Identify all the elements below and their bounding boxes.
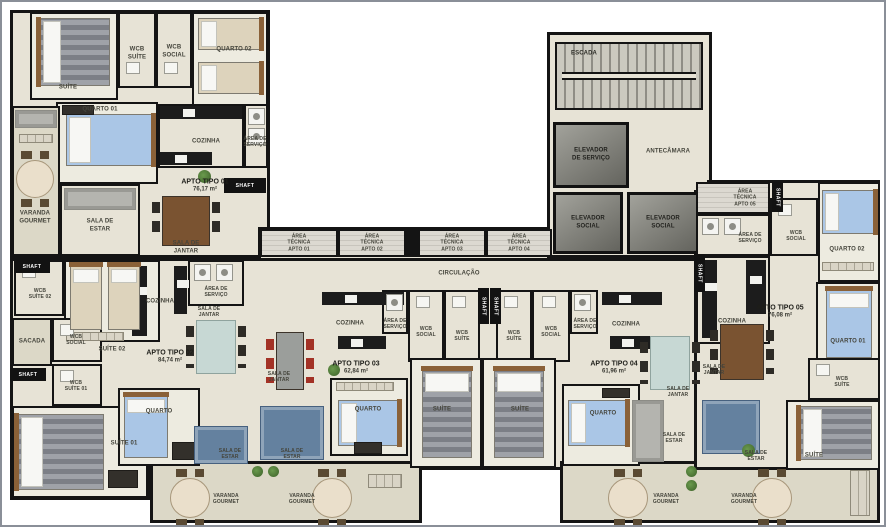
apt04-area: 61,96 m² <box>590 369 637 377</box>
apt02-quarto-label: QUARTO <box>146 408 173 416</box>
tech-area-apto04-label: ÁREA TÉCNICA APTO 04 <box>508 234 531 253</box>
apt05-quarto02-label: QUARTO 02 <box>829 246 864 254</box>
apt05-washer <box>702 218 719 235</box>
apt02-dryer <box>216 264 233 281</box>
apt01-quarto02-bed-1 <box>198 18 260 50</box>
apt02-plant-1 <box>252 466 263 477</box>
apt04-quarto-bed <box>568 400 626 446</box>
apt02-cozinha-label: COZINHA <box>146 298 174 306</box>
apt02-suite02-bed-1 <box>70 266 102 330</box>
apt01-cozinha-label: COZINHA <box>192 138 220 146</box>
apt01-kitchen-counter-2 <box>160 152 212 165</box>
apt04-dining-table <box>650 336 690 390</box>
apt02-shaft-2: SHAFT <box>10 368 46 381</box>
apt02-quarto-bed <box>124 396 168 458</box>
apt03-area: 62,84 m² <box>332 369 379 377</box>
apt04-plant-1 <box>686 466 697 477</box>
apt03-varanda-table <box>312 478 352 518</box>
apt05-quarto01-label: QUARTO 01 <box>830 338 865 346</box>
apt05-area: 76,08 m² <box>756 313 803 321</box>
apt02-varanda-table <box>170 478 210 518</box>
stairs-label: ESCADA <box>571 50 597 58</box>
stairs-landing <box>562 72 696 80</box>
apt02-quarto-desk <box>172 442 196 460</box>
apt03-kitchen-counter-2 <box>338 336 386 349</box>
apt01-sala-sofa <box>64 188 136 210</box>
apt01-sala-jantar-label: SALA DE JANTAR <box>173 241 200 256</box>
apt02-wcb-suite02-label: WCB SUÍTE 02 <box>29 288 51 301</box>
apt02-kitchen-counter-2 <box>174 266 187 314</box>
tech-area-apto01-label: ÁREA TÉCNICA APTO 01 <box>288 234 311 253</box>
apt02-suite02-label: SUÍTE 02 <box>99 346 126 354</box>
apt02-sala-jantar-label: SALA DE JANTAR <box>198 306 220 319</box>
apt04-suite-label: SUÍTE <box>511 406 529 414</box>
apt05-suite-label: SUÍTE <box>805 452 823 460</box>
service-elevator-label: ELEVADOR DE SERVIÇO <box>572 148 610 163</box>
apt02-suite02-bed-2 <box>108 266 140 330</box>
apt04-sala-estar-label: SALA DE ESTAR <box>663 432 685 445</box>
apt01-varanda-label: VARANDA GOURMET <box>19 211 50 226</box>
apt04-cozinha-label: COZINHA <box>612 321 640 329</box>
center-shaft-2: SHAFT <box>490 288 501 324</box>
apt02-sacada-label: SACADA <box>19 338 45 346</box>
tech-area-apto03-label: ÁREA TÉCNICA APTO 03 <box>441 234 464 253</box>
apt05-area-tecnica-label: ÁREA TÉCNICA APTO 05 <box>734 189 757 208</box>
apt04-sala-sofa <box>632 400 664 462</box>
social-elevator-1-label: ELEVADOR SOCIAL <box>571 216 605 231</box>
apt01-suite-label: SUÍTE <box>59 84 77 92</box>
apt02-dining-table <box>196 320 236 374</box>
apt01-wcb-suite-fixture <box>126 62 140 74</box>
apt03-wcb-suite-label: WCB SUÍTE <box>454 330 469 343</box>
apt05-title: APTO TIPO 05 76,08 m² <box>756 294 803 329</box>
apt02-area-servico-label: ÁREA DE SERVIÇO <box>204 286 227 299</box>
apt04-name: APTO TIPO 04 <box>590 361 637 368</box>
apt02-shaft-1: SHAFT <box>14 260 50 273</box>
apt03-varanda-bench <box>368 474 402 488</box>
apt01-shaft: SHAFT <box>224 178 266 193</box>
apt05-shaft-1: SHAFT <box>772 182 783 212</box>
apt04-suite-bed <box>494 370 544 458</box>
apt04-area-servico-label: ÁREA DE SERVIÇO <box>573 318 596 331</box>
apt01-quarto01-label: QUARTO 01 <box>82 106 117 114</box>
apt05-wcb-suite-fixture <box>816 364 830 376</box>
apt02-sala-estar-label: SALA DE ESTAR <box>219 448 241 461</box>
apt04-title: APTO TIPO 04 61,96 m² <box>590 350 637 385</box>
apt01-wcb-social-label: WCB SOCIAL <box>162 45 185 60</box>
apt02-suite01-bed <box>18 414 104 490</box>
apt05-sala-jantar-label: SALA DE JANTAR <box>703 364 725 377</box>
apt03-sala-jantar-label: SALA DE JANTAR <box>268 371 290 384</box>
apt02-name: APTO TIPO 02 <box>146 350 193 357</box>
apt04-kitchen-counter-1 <box>602 292 662 305</box>
apt04-wcb-social-fixture <box>542 296 556 308</box>
apt05-shaft-2: SHAFT <box>694 254 705 292</box>
apt01-varanda-sofa <box>15 110 57 128</box>
antechamber-label: ANTECÂMARA <box>646 148 690 156</box>
apt05-quarto02-bed <box>822 190 874 234</box>
apt01-quarto01-bed <box>66 114 152 166</box>
apt05-name: APTO TIPO 05 <box>756 305 803 312</box>
apt01-quarto02-label: QUARTO 02 <box>216 46 251 54</box>
apt03-quarto-label: QUARTO <box>355 406 382 414</box>
apt05-sala-estar-label: SALA DE ESTAR <box>745 450 767 463</box>
apt03-wcb-social-fixture <box>416 296 430 308</box>
apt01-title: APTO TIPO 01 76,17 m² <box>181 168 228 203</box>
apt02-washer <box>194 264 211 281</box>
apt04-wcb-suite-label: WCB SUÍTE <box>506 330 521 343</box>
apt04-quarto-label: QUARTO <box>590 410 617 418</box>
tech-area-apto02-label: ÁREA TÉCNICA APTO 02 <box>361 234 384 253</box>
apt02-suite01-desk <box>108 470 138 488</box>
apt03-title: APTO TIPO 03 62,84 m² <box>332 350 379 385</box>
apt01-varanda-table <box>16 160 54 198</box>
apt03-varanda-label: VARANDA GOURMET <box>289 493 315 506</box>
apt03-cozinha-label: COZINHA <box>336 320 364 328</box>
apt02-area: 84,74 m² <box>146 358 193 366</box>
apt05-area-servico-label: ÁREA DE SERVIÇO <box>738 232 761 245</box>
apt04-varanda-label: VARANDA GOURMET <box>653 493 679 506</box>
wall-segment <box>406 229 418 257</box>
apt03-sala-estar-label: SALA DE ESTAR <box>281 448 303 461</box>
apt05-wcb-social-label: WCB SOCIAL <box>786 230 806 243</box>
apt01-quarto02-bed-2 <box>198 62 260 94</box>
apt05-varanda-table <box>752 478 792 518</box>
floor-plan: ESCADA ELEVADOR DE SERVIÇO ANTECÂMARA EL… <box>0 0 886 527</box>
apt01-wcb-suite-label: WCB SUÍTE <box>128 47 146 62</box>
apt03-suite-label: SUÍTE <box>433 406 451 414</box>
apt03-area-servico-label: ÁREA DE SERVIÇO <box>383 318 406 331</box>
apt02-varanda-label: VARANDA GOURMET <box>213 493 239 506</box>
apt01-area: 76,17 m² <box>181 187 228 195</box>
apt05-quarto01-bed <box>826 290 872 358</box>
apt05-varanda-label: VARANDA GOURMET <box>731 493 757 506</box>
apt01-name: APTO TIPO 01 <box>181 179 228 186</box>
apt01-washer <box>248 108 265 125</box>
apt05-cozinha-label: COZINHA <box>718 318 746 326</box>
apt02-title: APTO TIPO 02 84,74 m² <box>146 339 193 374</box>
apt03-wcb-social-label: WCB SOCIAL <box>416 326 436 339</box>
circulation-label: CIRCULAÇÃO <box>438 270 479 278</box>
apt01-suite-bed <box>40 18 110 86</box>
apt04-quarto-desk <box>602 388 630 398</box>
apt05-quarto02-wardrobe <box>822 262 874 271</box>
apt04-varanda-table <box>608 478 648 518</box>
apt02-suite01-label: SUÍTE 01 <box>111 440 138 448</box>
apt03-quarto-desk <box>354 442 382 454</box>
apt03-suite-bed <box>422 370 472 458</box>
apt01-kitchen-counter-1 <box>160 106 242 119</box>
apt03-wcb-suite-fixture <box>452 296 466 308</box>
apt01-varanda-shelf <box>19 134 53 143</box>
apt04-sala-jantar-label: SALA DE JANTAR <box>667 386 689 399</box>
apt02-wcb-suite01-label: WCB SUÍTE 01 <box>65 380 87 393</box>
apt03-name: APTO TIPO 03 <box>332 361 379 368</box>
apt04-wcb-suite-fixture <box>504 296 518 308</box>
apt05-varanda-bench <box>850 470 870 516</box>
apt04-plant-2 <box>686 480 697 491</box>
apt03-washer <box>386 294 403 311</box>
apt02-wcb-social-label: WCB SOCIAL <box>66 334 86 347</box>
apt04-washer <box>574 294 591 311</box>
social-elevator-2-label: ELEVADOR SOCIAL <box>646 216 680 231</box>
apt02-plant-2 <box>268 466 279 477</box>
apt05-dining-table <box>720 324 764 380</box>
apt05-wcb-suite-label: WCB SUÍTE <box>834 376 849 389</box>
apt01-area-servico-label: ÁREA DE SERVIÇO <box>243 136 266 149</box>
apt01-sala-estar-label: SALA DE ESTAR <box>87 219 114 234</box>
center-shaft-1: SHAFT <box>478 288 489 324</box>
apt04-wcb-social-label: WCB SOCIAL <box>541 326 561 339</box>
apt01-wcb-social-fixture <box>164 62 178 74</box>
